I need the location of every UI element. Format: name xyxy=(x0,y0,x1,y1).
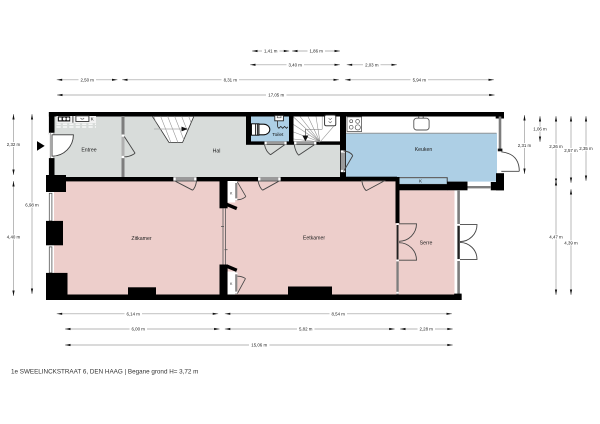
svg-text:5,94 m: 5,94 m xyxy=(413,78,427,83)
svg-text:6,14 m: 6,14 m xyxy=(126,312,140,317)
svg-text:2,50 m: 2,50 m xyxy=(80,78,94,83)
svg-text:4,39 m: 4,39 m xyxy=(564,241,578,246)
svg-text:8,54 m: 8,54 m xyxy=(331,312,345,317)
svg-text:1,06 m: 1,06 m xyxy=(533,127,547,132)
svg-text:2,26 m: 2,26 m xyxy=(549,144,563,149)
svg-text:1,41 m: 1,41 m xyxy=(264,49,278,54)
svg-text:Eetkamer: Eetkamer xyxy=(303,236,325,242)
svg-text:2,32 m: 2,32 m xyxy=(7,142,21,147)
svg-text:15,06 m: 15,06 m xyxy=(251,343,267,348)
svg-text:1,86 m: 1,86 m xyxy=(309,49,323,54)
svg-text:Entree: Entree xyxy=(81,148,96,154)
svg-text:K: K xyxy=(91,117,94,122)
svg-text:3,40 m: 3,40 m xyxy=(288,63,302,68)
svg-text:5,82 m: 5,82 m xyxy=(299,327,313,332)
svg-text:1e SWEELINCKSTRAAT 6, DEN HAAG: 1e SWEELINCKSTRAAT 6, DEN HAAG | Begane … xyxy=(11,369,198,376)
svg-text:8,31 m: 8,31 m xyxy=(224,78,238,83)
svg-text:17,05 m: 17,05 m xyxy=(268,93,284,98)
svg-text:Hal: Hal xyxy=(213,149,221,155)
svg-text:Keuken: Keuken xyxy=(415,147,433,153)
svg-text:2,03 m: 2,03 m xyxy=(365,63,379,68)
svg-text:2,31 m: 2,31 m xyxy=(518,143,532,148)
svg-text:Zitkamer: Zitkamer xyxy=(131,236,151,242)
svg-text:2,35 m: 2,35 m xyxy=(579,146,593,151)
svg-text:6,00 m: 6,00 m xyxy=(131,327,145,332)
svg-text:2,57 m: 2,57 m xyxy=(564,148,578,153)
svg-text:2,28 m: 2,28 m xyxy=(419,327,433,332)
svg-text:4,47 m: 4,47 m xyxy=(549,235,563,240)
svg-text:Toilet: Toilet xyxy=(272,132,284,138)
svg-text:4,40 m: 4,40 m xyxy=(7,235,21,240)
svg-text:Serre: Serre xyxy=(420,241,433,247)
svg-text:6,98 m: 6,98 m xyxy=(25,203,39,208)
svg-text:K: K xyxy=(419,179,422,184)
